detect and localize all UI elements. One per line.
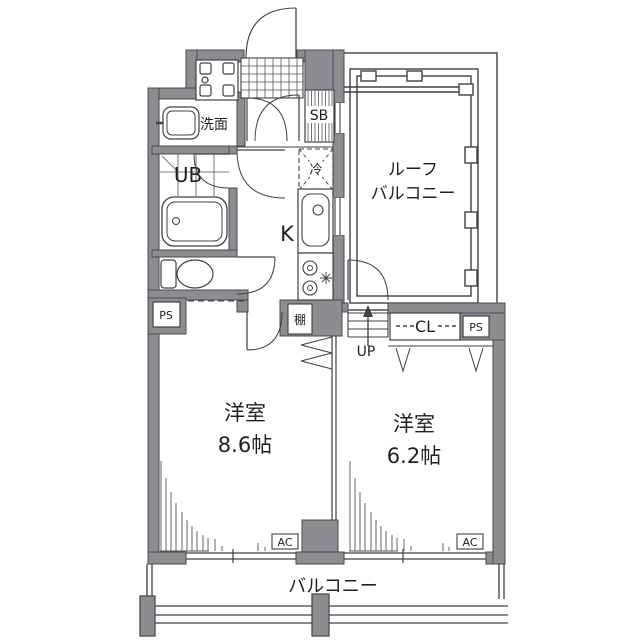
washroom-label: 洗面 [200,117,228,133]
toilet-tank [161,260,176,288]
bathtub [162,197,227,246]
side-window-2 [332,198,345,235]
roof-balcony-label-line2: バルコニー [371,184,456,204]
toilet-bowl [177,260,213,288]
room2-name-label: 洋室 [393,412,435,436]
room1-name-label: 洋室 [224,401,266,425]
unit-bath-label: UB [174,163,202,187]
stairs-up-label: UP [357,344,376,360]
washroom-sink [163,107,199,139]
pipe-space-left-label: PS [159,309,173,322]
ac-left-label: AC [277,536,292,549]
stove [298,253,333,300]
kitchen-label: K [280,222,295,246]
floor-plan: SB 洗面 UB PS K [0,0,640,640]
room1-size-label: 8.6帖 [218,433,272,457]
entrance-tile-area [241,58,303,98]
room2-size-label: 6.2帖 [387,444,441,468]
refrigerator-label: 冷 [309,163,322,178]
closet-label: CL [415,317,435,336]
shoe-box-label: SB [310,108,329,124]
shoe-box: SB [305,90,334,142]
shelf-label: 棚 [294,312,306,327]
pipe-space-right-label: PS [469,321,483,334]
kitchen-sink [298,189,333,253]
shelf: 棚 [288,304,312,334]
washing-machine-pan [196,60,238,100]
balcony-label: バルコニー [288,576,378,597]
floor-plan-canvas: SB 洗面 UB PS K [0,0,640,640]
ac-right-label: AC [462,536,477,549]
pipe-space-right: PS [463,316,489,337]
roof-balcony-label-line1: ルーフ [388,160,438,180]
